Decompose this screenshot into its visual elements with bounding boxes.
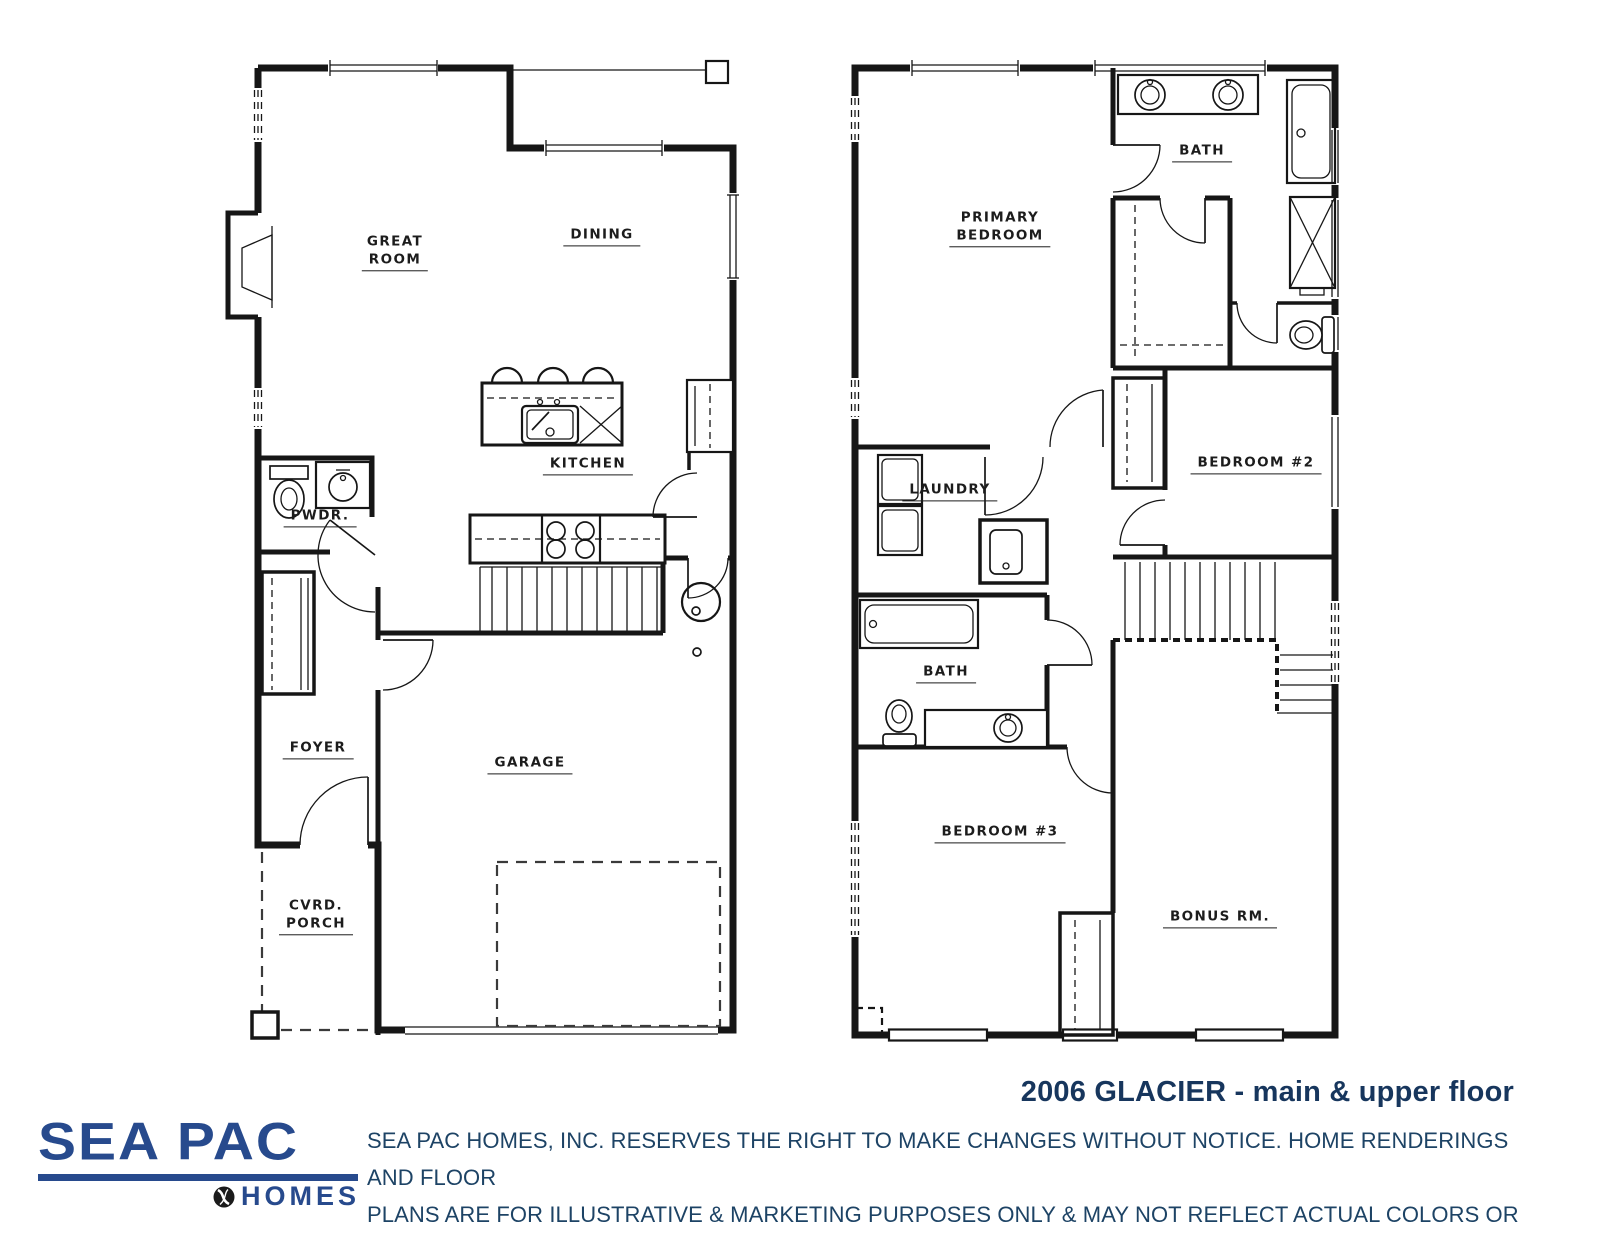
plan-title: 2006 GLACIER - main & upper floor	[1021, 1076, 1514, 1109]
logo-text-secondary: HOMES	[241, 1183, 360, 1210]
utility-closet	[980, 520, 1047, 583]
garage-parking-outline	[497, 862, 720, 1026]
chimney-box	[706, 61, 728, 83]
vanity-sink-icon	[925, 710, 1047, 747]
stairs-upper	[1113, 562, 1333, 713]
linen-closet	[1113, 378, 1165, 488]
window	[852, 378, 859, 419]
bathtub-icon	[1287, 80, 1335, 183]
door-laundry	[985, 457, 1043, 515]
coat-closet	[262, 572, 314, 694]
globe-icon	[212, 1185, 236, 1209]
window	[1196, 1030, 1283, 1041]
door-front	[300, 777, 368, 845]
refrigerator-icon	[687, 380, 733, 452]
upper-floor-plan	[852, 60, 1339, 1041]
logo-text-primary: SEA PAC	[38, 1116, 360, 1169]
bar-stool-icon	[492, 368, 522, 383]
window	[1332, 415, 1338, 509]
door-powder	[318, 520, 375, 612]
stair-railing	[1113, 640, 1277, 713]
kitchen-counter	[470, 515, 665, 563]
door-bedroom2	[1120, 500, 1165, 545]
door-water-closet	[1237, 303, 1277, 343]
sea-pac-homes-logo: SEA PAC HOMES	[38, 1116, 360, 1210]
window	[1093, 60, 1267, 76]
door-hall-bath	[1047, 620, 1092, 665]
door-primary-bath	[1113, 145, 1160, 192]
disclaimer: SEA PAC HOMES, INC. RESERVES THE RIGHT T…	[367, 1122, 1557, 1237]
toilet-icon	[1290, 317, 1334, 353]
kitchen-island	[482, 368, 622, 445]
door-primary-bedroom	[1050, 390, 1103, 447]
main-floor-plan	[228, 60, 739, 1038]
floor-plans-drawing: .s{stroke:#161616;fill:none;stroke-linej…	[0, 0, 1600, 1237]
window	[727, 193, 739, 280]
toilet-icon	[270, 466, 308, 518]
window	[255, 88, 262, 142]
powder-sink-icon	[316, 462, 370, 508]
shower-icon	[1290, 197, 1335, 295]
porch-post	[252, 1012, 278, 1038]
window	[328, 60, 438, 76]
double-vanity	[1118, 75, 1258, 114]
window	[889, 1030, 987, 1041]
door-walk-in-closet	[1160, 198, 1205, 243]
door-bedroom3	[1067, 747, 1113, 793]
window	[852, 96, 859, 142]
porch-roof-marker	[856, 1008, 882, 1034]
stairs-main	[480, 567, 663, 631]
window	[544, 140, 664, 156]
door-garage-entry	[383, 640, 433, 690]
bedroom3-closet	[1060, 913, 1113, 1035]
logo-underline-bar	[38, 1174, 358, 1181]
window	[255, 388, 262, 429]
disclaimer-line-1: SEA PAC HOMES, INC. RESERVES THE RIGHT T…	[367, 1122, 1557, 1196]
fireplace-bay	[228, 213, 272, 317]
door-pantry	[653, 473, 697, 517]
washer-dryer-icon	[878, 455, 922, 555]
disclaimer-line-2: PLANS ARE FOR ILLUSTRATIVE & MARKETING P…	[367, 1196, 1557, 1237]
toilet-icon	[883, 700, 916, 746]
window	[910, 60, 1020, 76]
floor-plan-sheet: .s{stroke:#161616;fill:none;stroke-linej…	[0, 0, 1600, 1237]
garage-door	[405, 1027, 718, 1034]
window	[1332, 601, 1339, 684]
window	[852, 821, 859, 937]
covered-porch-outline	[252, 852, 372, 1038]
bar-stool-icon	[538, 368, 568, 383]
bar-stool-icon	[583, 368, 613, 383]
bathtub-icon	[860, 600, 978, 648]
